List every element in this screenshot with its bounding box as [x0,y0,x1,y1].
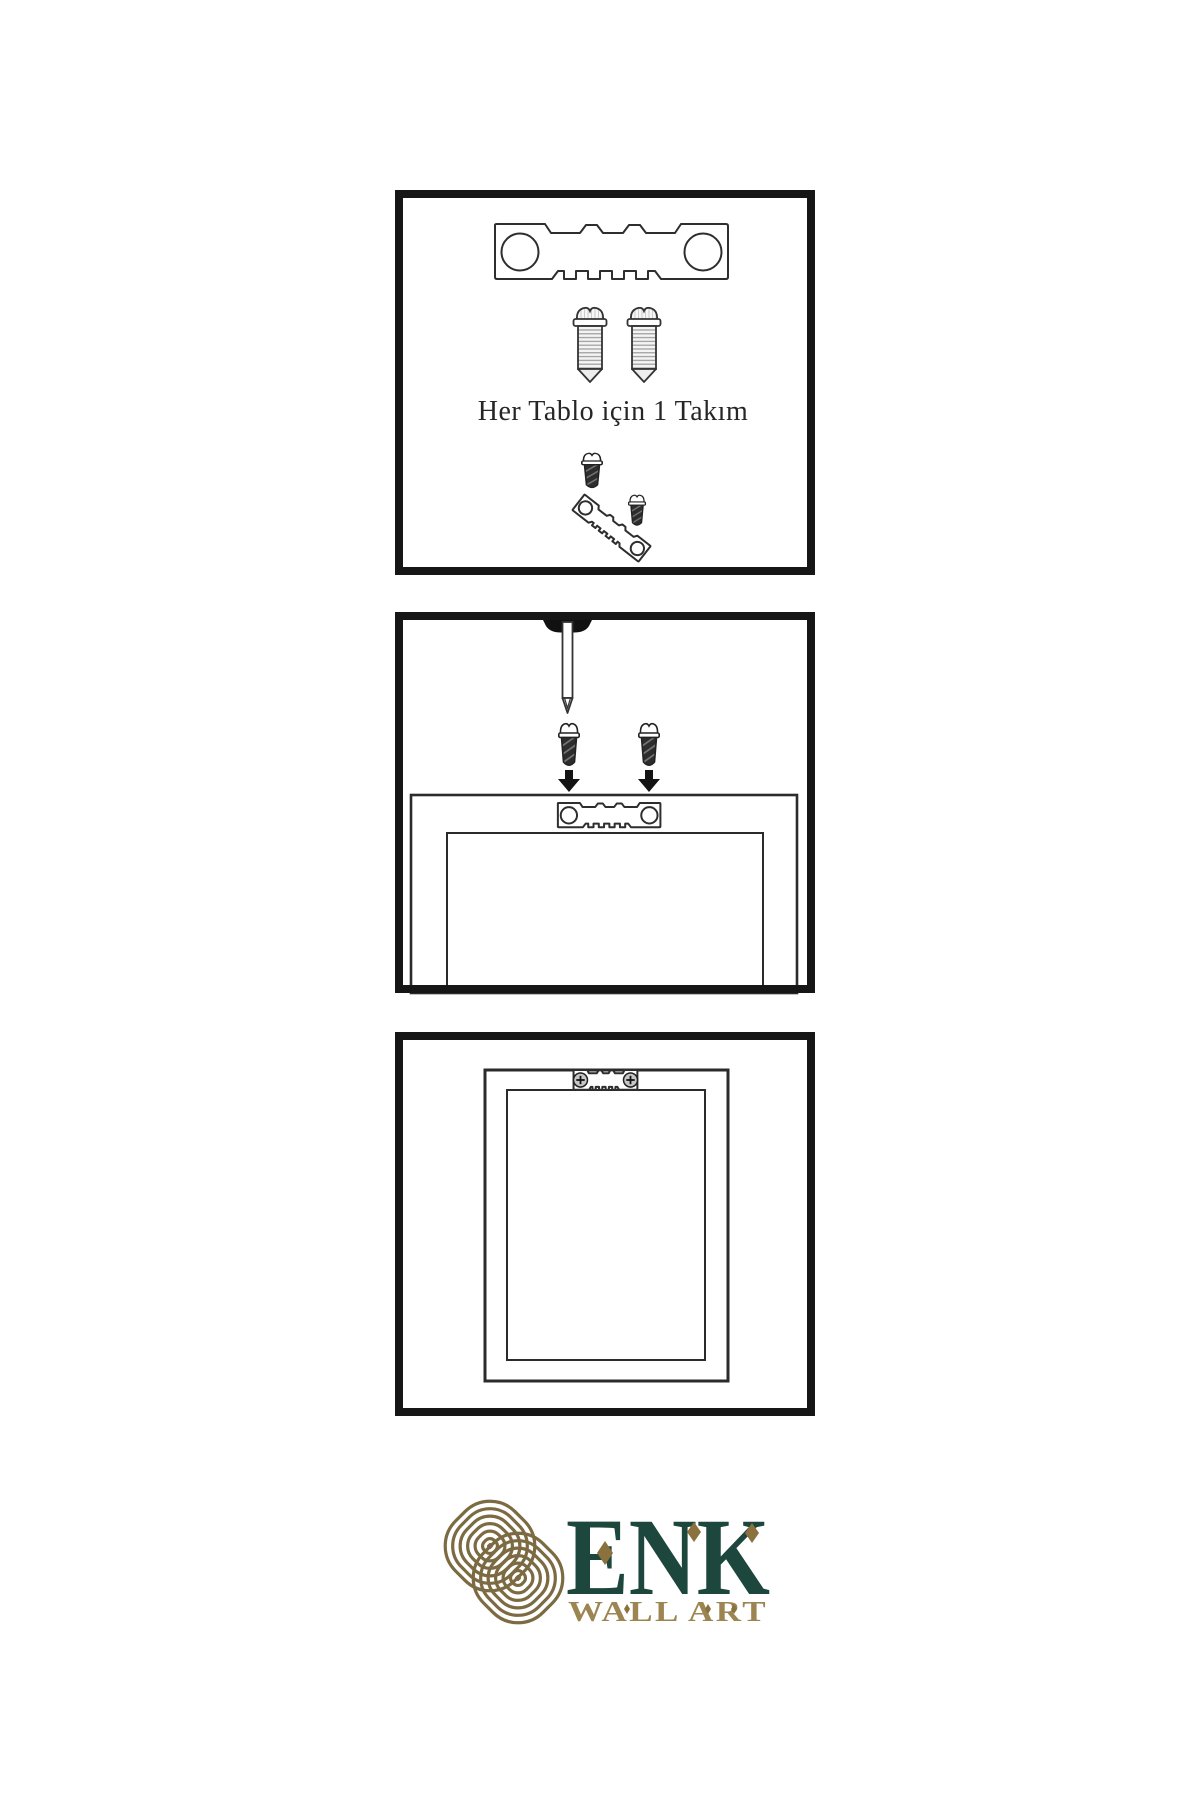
step2-panel [395,612,815,993]
knot-mark-icon [431,1487,578,1638]
brand-tagline: WALL ART [568,1596,768,1628]
brand-logo: ENK WALL ART [431,1487,770,1638]
step1-panel [395,190,815,575]
step3-panel [395,1032,815,1416]
page: Her Tablo için 1 Takım [0,0,1200,1800]
